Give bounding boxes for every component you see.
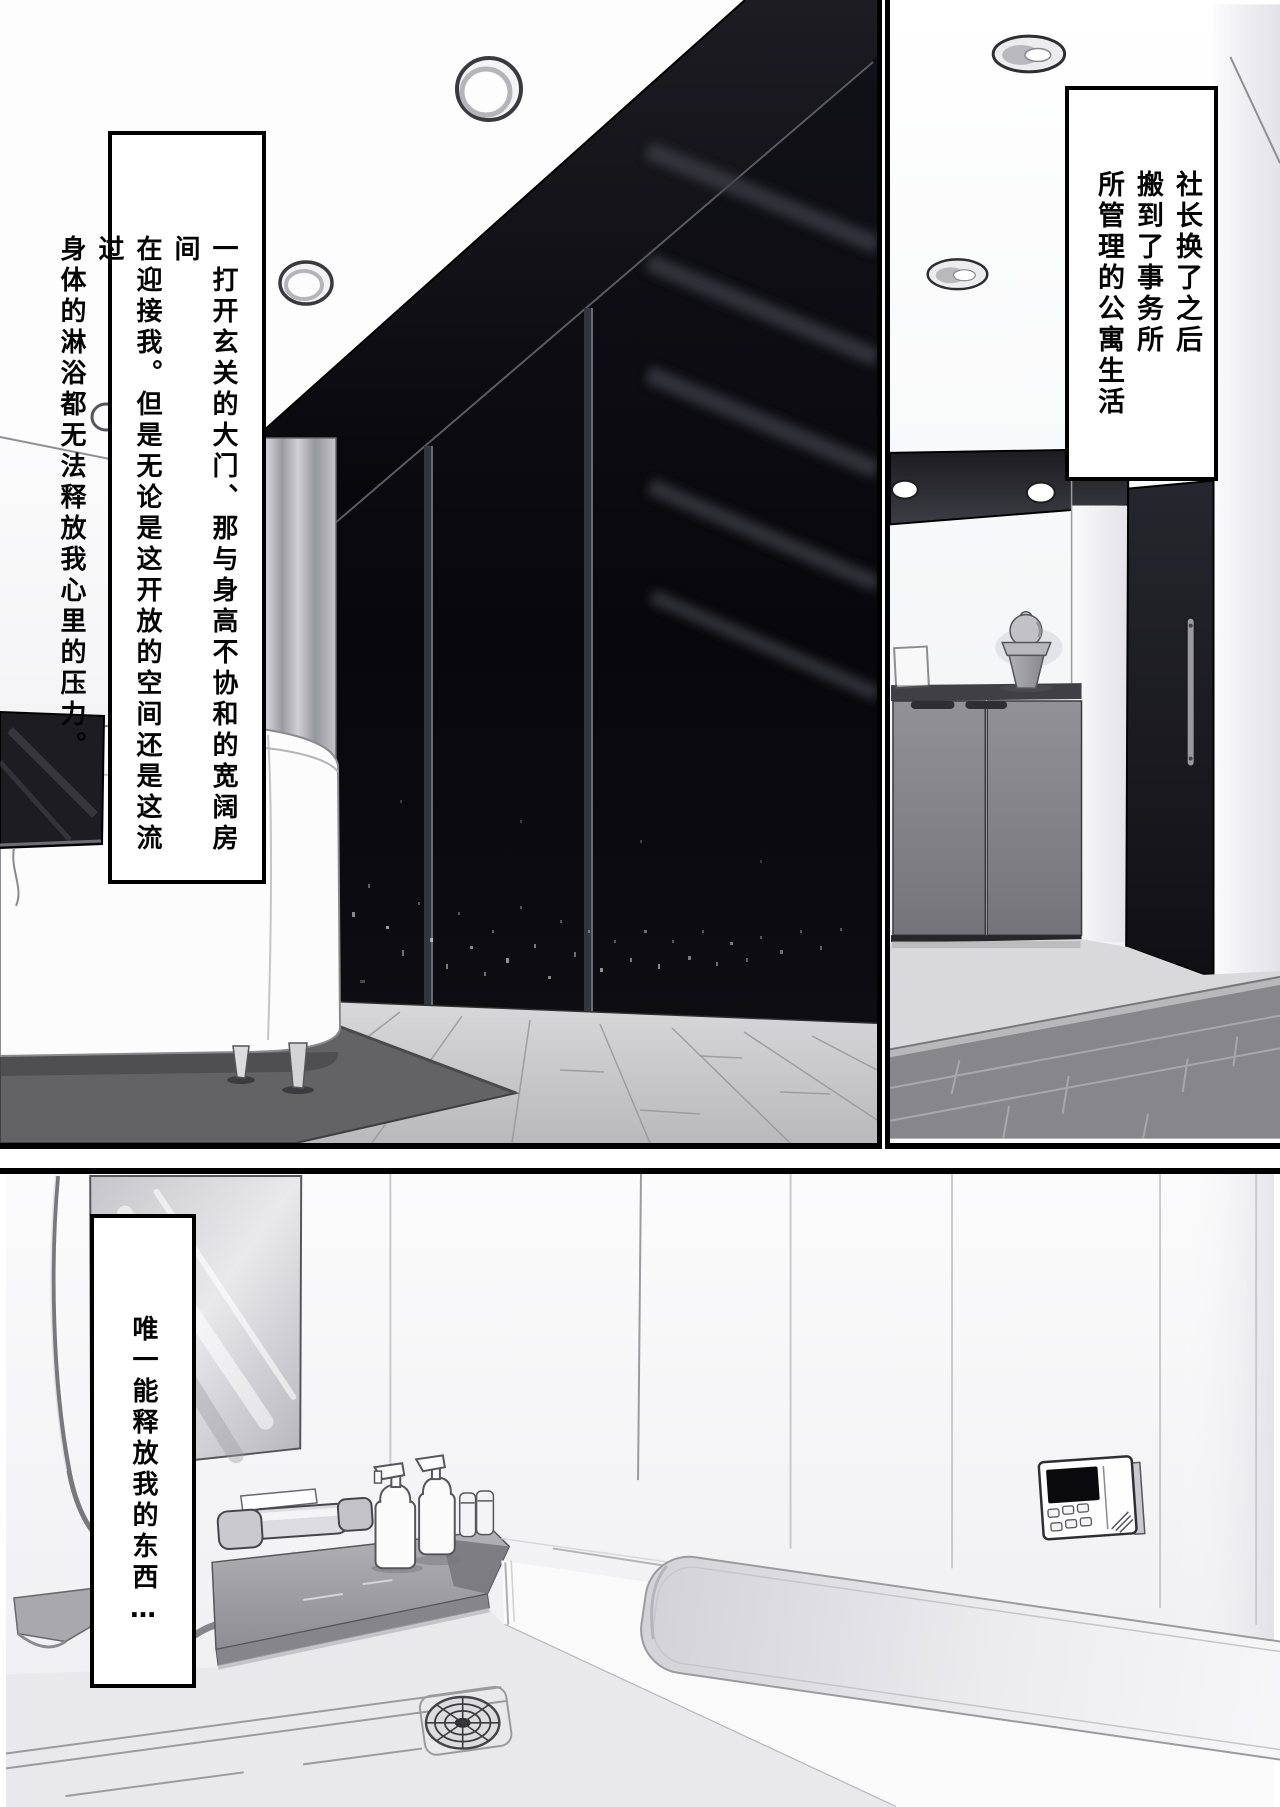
manga-page: 一打开玄关的大门、那与身高不协和的宽阔房间 在迎接我。但是无论是这开放的空间还是… [0, 0, 1280, 1807]
caption-box-living: 一打开玄关的大门、那与身高不协和的宽阔房间 在迎接我。但是无论是这开放的空间还是… [108, 131, 266, 884]
caption-box-bathroom: 唯一能释放我的东西… [90, 1214, 196, 1688]
bath-control-panel [1039, 1455, 1145, 1540]
caption-column: 唯一能释放我的东西… [126, 1315, 160, 1684]
caption-text: 唯一能释放我的东西… [126, 1218, 160, 1684]
door-notch [965, 701, 1007, 709]
photo-stand [894, 647, 929, 688]
door-notch [911, 701, 955, 709]
caption-box-entrance: 社长换了之后 搬到了事务所 所管理的公寓生活 [1065, 86, 1218, 481]
caption-text: 社长换了之后 搬到了事务所 所管理的公寓生活 [1083, 90, 1214, 477]
small-bottles [460, 1491, 494, 1537]
caption-text: 一打开玄关的大门、那与身高不协和的宽阔房间 在迎接我。但是无论是这开放的空间还是… [46, 135, 262, 880]
recessed-light [928, 259, 988, 289]
caption-column: 搬到了事务所 [1128, 170, 1167, 469]
door-handle [1187, 618, 1195, 767]
wall-shade [1175, 1174, 1274, 1669]
ceiling-light-ring [280, 262, 332, 304]
ceiling-light-ring [457, 58, 521, 120]
caption-column: 在迎接我。但是无论是这开放的空间还是这流过 [90, 235, 166, 872]
recessed-light [993, 36, 1064, 72]
wall-right-of-door [1214, 4, 1280, 977]
caption-column: 社长换了之后 [1167, 170, 1206, 469]
caption-column: 一打开玄关的大门、那与身高不协和的宽阔房间 [166, 235, 242, 872]
panel-display [1046, 1466, 1100, 1503]
entry-door [1126, 481, 1213, 974]
downlight [892, 481, 918, 499]
caption-column: 所管理的公寓生活 [1089, 170, 1128, 469]
downlight [1027, 483, 1055, 503]
caption-column: 身体的淋浴都无法释放我心里的压力。 [52, 235, 90, 872]
